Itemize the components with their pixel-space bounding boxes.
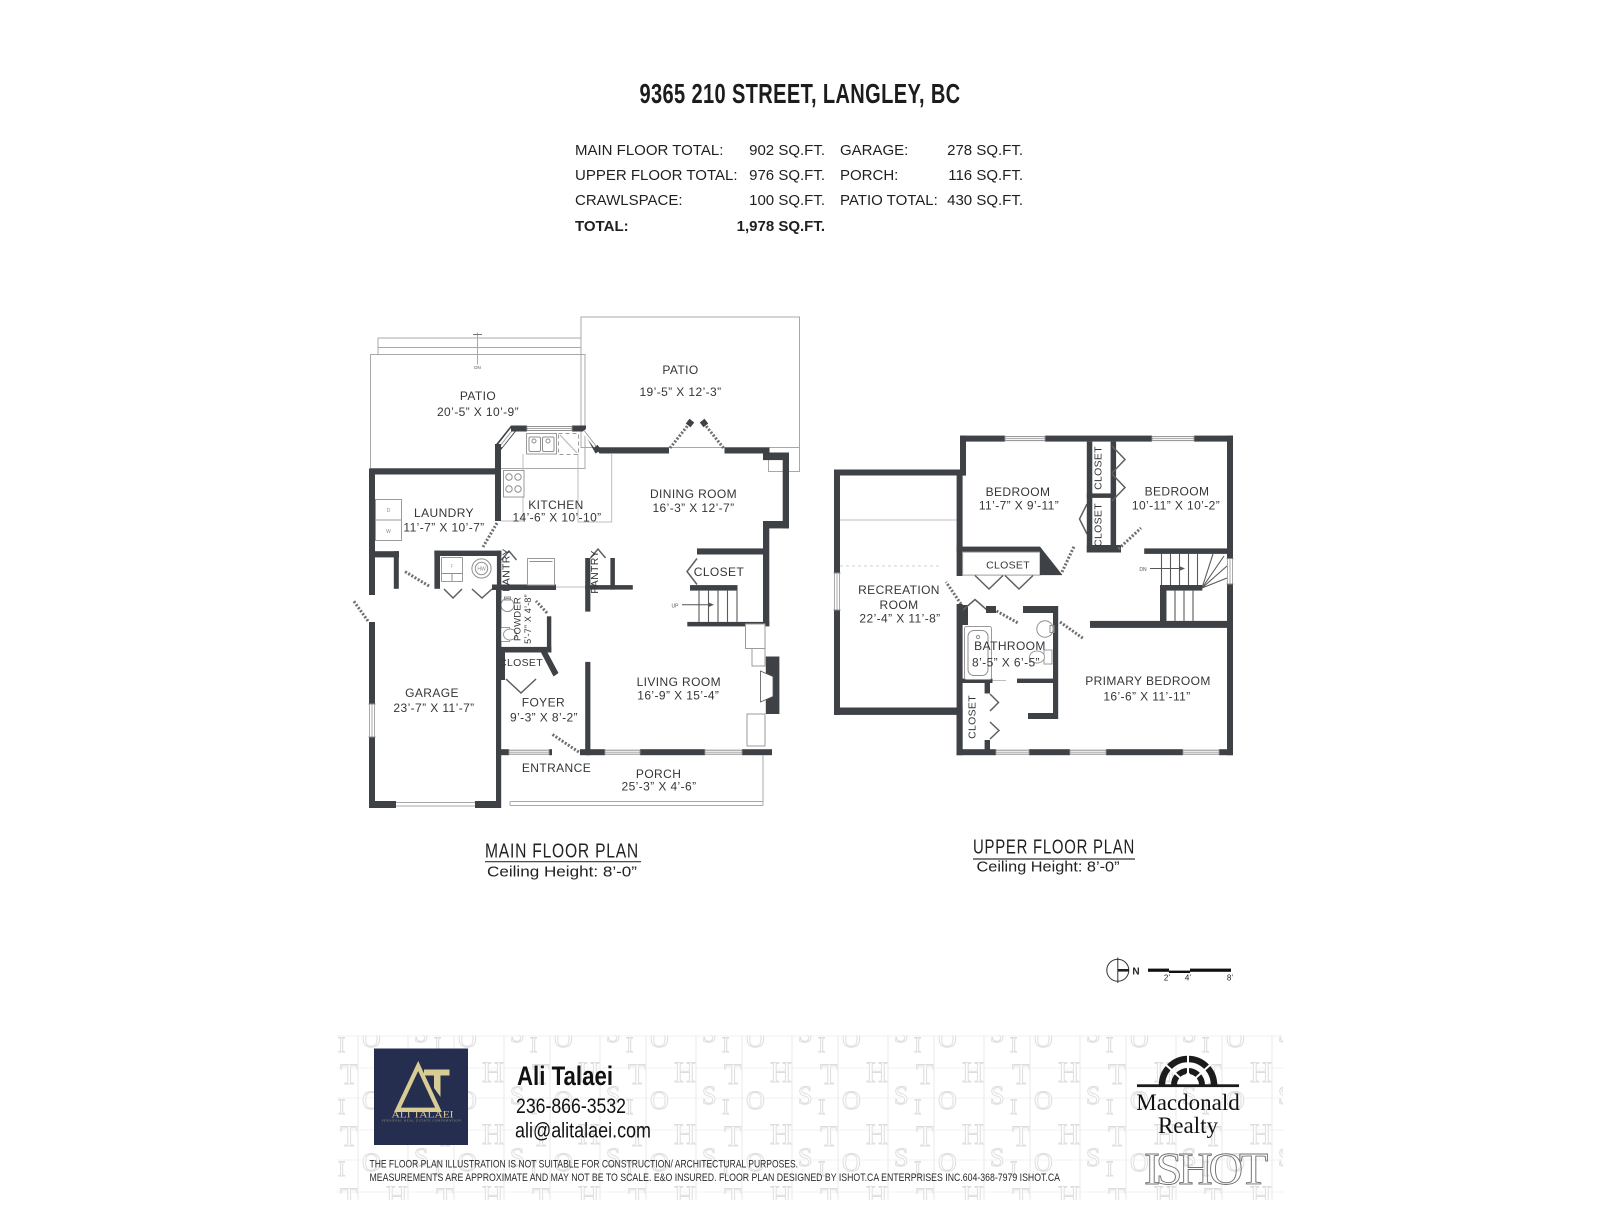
svg-text:UP: UP xyxy=(672,604,680,610)
svg-text:11’-7” X 9’-11”: 11’-7” X 9’-11” xyxy=(979,499,1059,513)
svg-text:430 SQ.FT.: 430 SQ.FT. xyxy=(947,192,1023,209)
svg-text:FOYER: FOYER xyxy=(522,696,565,710)
svg-text:CRAWLSPACE:: CRAWLSPACE: xyxy=(575,192,683,209)
svg-text:2’: 2’ xyxy=(1164,974,1170,983)
svg-text:16’-3” X 12’-7”: 16’-3” X 12’-7” xyxy=(652,501,734,515)
svg-text:ali@alitalaei.com: ali@alitalaei.com xyxy=(515,1120,651,1143)
svg-text:UPPER FLOOR PLAN: UPPER FLOOR PLAN xyxy=(973,837,1135,859)
svg-text:100 SQ.FT.: 100 SQ.FT. xyxy=(749,192,825,209)
svg-text:PANTRY: PANTRY xyxy=(589,550,601,593)
svg-text:23’-7” X 11’-7”: 23’-7” X 11’-7” xyxy=(393,701,474,715)
svg-text:W: W xyxy=(386,529,391,535)
svg-text:278 SQ.FT.: 278 SQ.FT. xyxy=(947,142,1023,159)
svg-text:CLOSET: CLOSET xyxy=(1093,446,1105,490)
svg-text:25’-3” X 4’-6”: 25’-3” X 4’-6” xyxy=(622,780,697,794)
svg-text:8’-5” X 6’-5”: 8’-5” X 6’-5” xyxy=(972,656,1040,670)
svg-text:236-866-3532: 236-866-3532 xyxy=(516,1095,626,1118)
svg-text:Ceiling Height: 8’-0”: Ceiling Height: 8’-0” xyxy=(487,864,637,881)
svg-text:TOTAL:: TOTAL: xyxy=(575,218,629,235)
svg-text:Realty: Realty xyxy=(1158,1113,1219,1138)
svg-text:CLOSET: CLOSET xyxy=(986,560,1030,572)
svg-text:DN: DN xyxy=(1139,567,1147,573)
svg-text:8’: 8’ xyxy=(1227,974,1233,983)
svg-text:GARAGE:: GARAGE: xyxy=(840,142,908,159)
svg-text:F: F xyxy=(451,564,454,569)
svg-text:CLOSET: CLOSET xyxy=(694,565,745,579)
svg-text:ENTRANCE: ENTRANCE xyxy=(522,761,591,775)
svg-text:THE FLOOR PLAN ILLUSTRATION IS: THE FLOOR PLAN ILLUSTRATION IS NOT SUITA… xyxy=(370,1159,799,1171)
svg-text:902 SQ.FT.: 902 SQ.FT. xyxy=(749,142,825,159)
svg-text:5’-7” X 4’-8”: 5’-7” X 4’-8” xyxy=(523,594,533,644)
svg-text:CLOSET: CLOSET xyxy=(967,695,979,739)
svg-text:PRIMARY BEDROOM: PRIMARY BEDROOM xyxy=(1085,674,1211,688)
svg-text:4’: 4’ xyxy=(1185,974,1191,983)
svg-text:LIVING ROOM: LIVING ROOM xyxy=(637,675,721,689)
svg-text:11’-7” X 10’-7”: 11’-7” X 10’-7” xyxy=(403,521,484,535)
svg-text:16’-9” X 15’-4”: 16’-9” X 15’-4” xyxy=(637,689,719,703)
svg-text:9365 210 STREET, LANGLEY, BC: 9365 210 STREET, LANGLEY, BC xyxy=(640,78,961,109)
svg-text:GARAGE: GARAGE xyxy=(405,686,459,700)
svg-text:Macdonald: Macdonald xyxy=(1136,1090,1240,1115)
svg-text:19’-5” X 12’-3”: 19’-5” X 12’-3” xyxy=(639,385,721,399)
svg-text:Ali Talaei: Ali Talaei xyxy=(517,1061,613,1091)
svg-text:LAUNDRY: LAUNDRY xyxy=(414,506,474,520)
svg-text:20’-5” X 10’-9”: 20’-5” X 10’-9” xyxy=(437,405,519,419)
svg-text:14’-6” X 10’-10”: 14’-6” X 10’-10” xyxy=(512,511,601,525)
svg-text:BEDROOM: BEDROOM xyxy=(1145,485,1210,499)
svg-text:9’-3” X 8’-2”: 9’-3” X 8’-2” xyxy=(510,711,578,725)
svg-text:MAIN FLOOR TOTAL:: MAIN FLOOR TOTAL: xyxy=(575,142,723,159)
svg-text:HW: HW xyxy=(477,567,486,573)
svg-text:PERSONAL REAL ESTATE CORPORATI: PERSONAL REAL ESTATE CORPORATION xyxy=(382,1119,462,1123)
svg-text:CLOSET: CLOSET xyxy=(1093,503,1105,547)
svg-text:16’-6” X 11’-11”: 16’-6” X 11’-11” xyxy=(1103,690,1190,704)
svg-text:PATIO: PATIO xyxy=(460,389,496,403)
svg-text:UPPER FLOOR TOTAL:: UPPER FLOOR TOTAL: xyxy=(575,167,738,184)
svg-text:976 SQ.FT.: 976 SQ.FT. xyxy=(749,167,825,184)
svg-text:PATIO TOTAL:: PATIO TOTAL: xyxy=(840,192,938,209)
svg-text:DINING ROOM: DINING ROOM xyxy=(650,487,737,501)
svg-text:PATIO: PATIO xyxy=(662,363,698,377)
svg-text:BEDROOM: BEDROOM xyxy=(986,485,1051,499)
svg-text:ISHOT: ISHOT xyxy=(1144,1143,1268,1194)
svg-text:ROOM: ROOM xyxy=(880,598,919,612)
svg-text:BATHROOM: BATHROOM xyxy=(974,639,1046,653)
svg-text:Ceiling Height: 8’-0”: Ceiling Height: 8’-0” xyxy=(977,859,1120,876)
svg-text:N: N xyxy=(1132,967,1139,978)
svg-text:MAIN FLOOR PLAN: MAIN FLOOR PLAN xyxy=(485,841,639,863)
svg-text:1,978 SQ.FT.: 1,978 SQ.FT. xyxy=(737,218,825,235)
svg-text:MEASUREMENTS ARE APPROXIMATE A: MEASUREMENTS ARE APPROXIMATE AND MAY NOT… xyxy=(370,1172,1061,1184)
svg-text:22’-4” X 11’-8”: 22’-4” X 11’-8” xyxy=(859,612,940,626)
svg-text:PORCH:: PORCH: xyxy=(840,167,898,184)
svg-text:116 SQ.FT.: 116 SQ.FT. xyxy=(948,167,1023,184)
svg-text:POWDER: POWDER xyxy=(513,597,524,641)
svg-text:10’-11” X 10’-2”: 10’-11” X 10’-2” xyxy=(1132,499,1220,513)
svg-text:RECREATION: RECREATION xyxy=(858,583,940,597)
svg-text:DN: DN xyxy=(474,365,481,370)
svg-text:D: D xyxy=(387,508,391,514)
svg-text:CLOSET: CLOSET xyxy=(499,657,543,669)
